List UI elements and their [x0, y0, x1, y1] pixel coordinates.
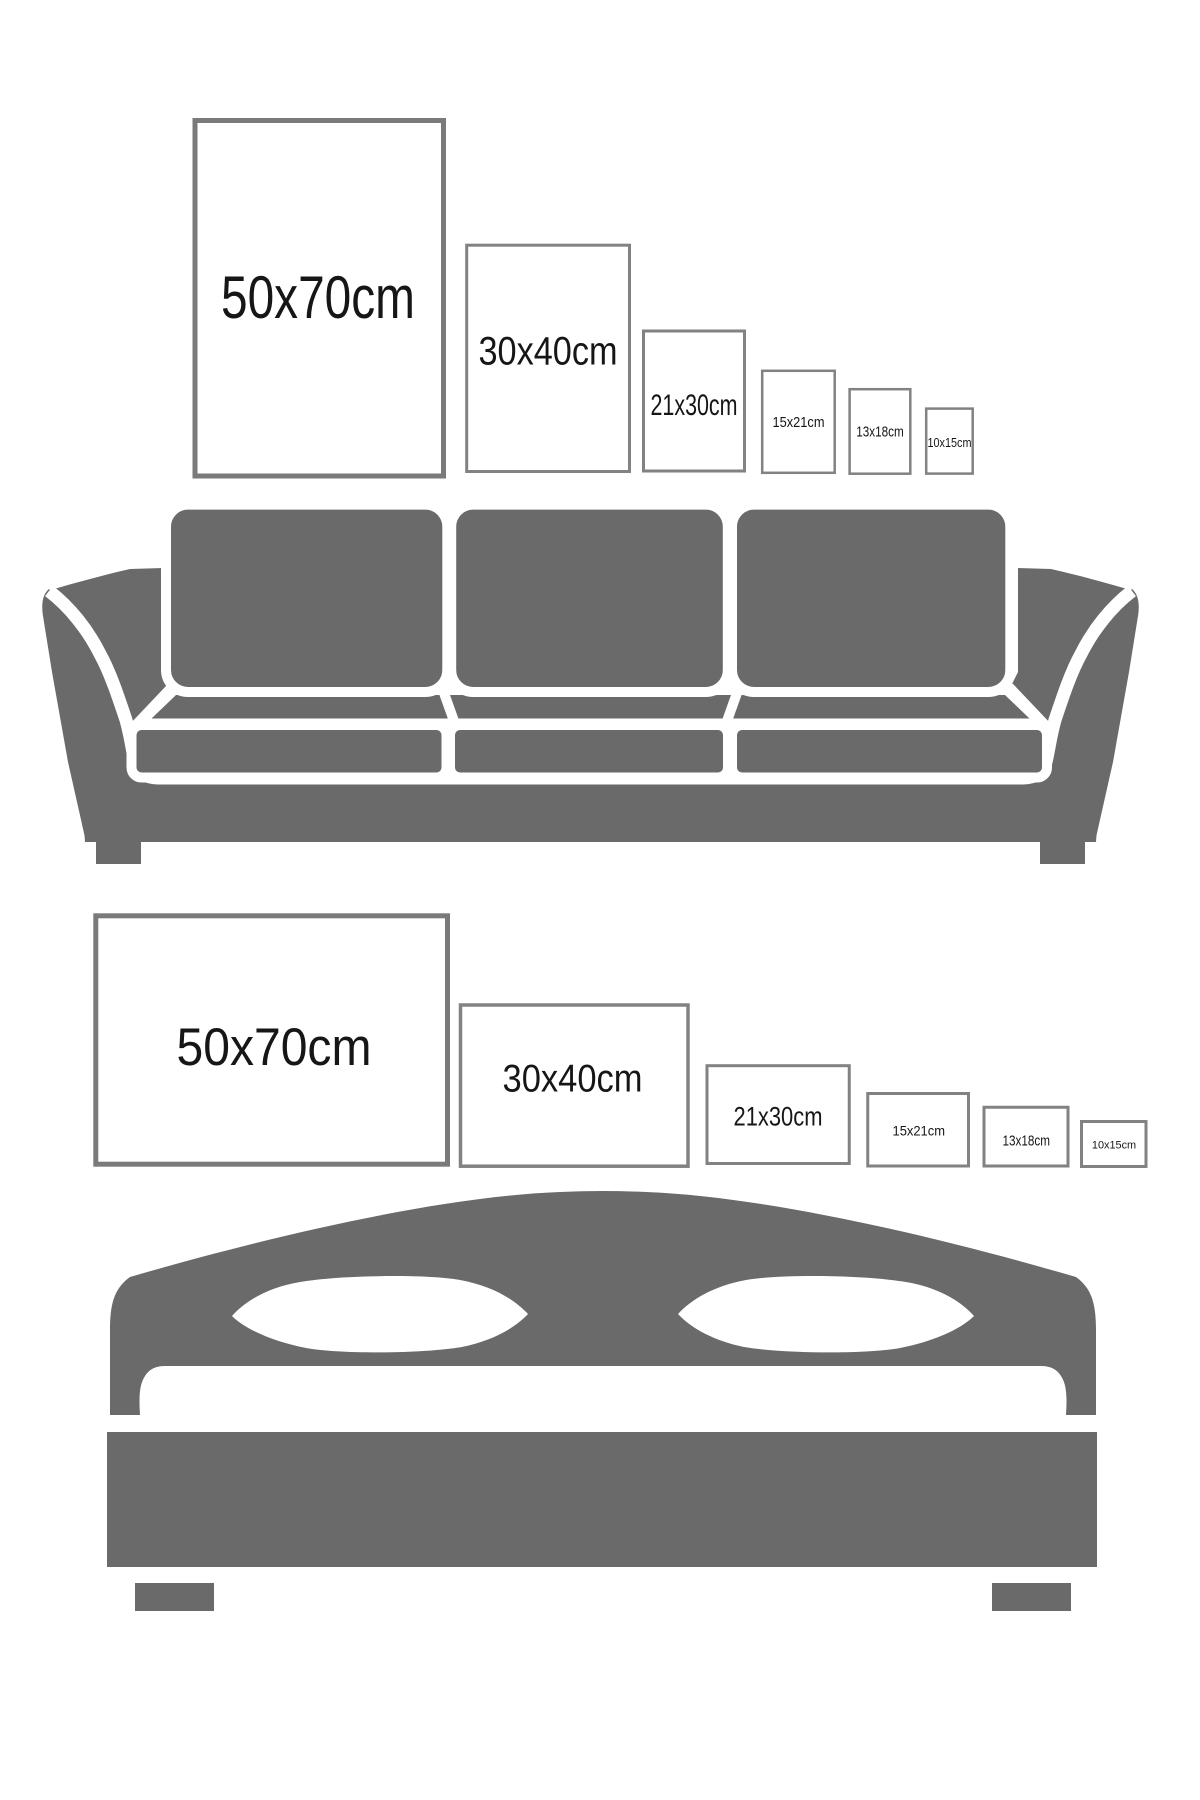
- svg-text:13x18cm: 13x18cm: [856, 424, 904, 441]
- svg-text:21x30cm: 21x30cm: [651, 389, 738, 422]
- svg-text:13x18cm: 13x18cm: [1003, 1133, 1051, 1150]
- svg-text:30x40cm: 30x40cm: [503, 1058, 643, 1101]
- svg-text:30x40cm: 30x40cm: [479, 330, 618, 374]
- svg-text:10x15cm: 10x15cm: [1092, 1140, 1136, 1152]
- svg-text:21x30cm: 21x30cm: [734, 1102, 823, 1132]
- svg-text:15x21cm: 15x21cm: [893, 1123, 946, 1139]
- svg-text:50x70cm: 50x70cm: [177, 1018, 372, 1077]
- svg-text:50x70cm: 50x70cm: [221, 264, 415, 331]
- svg-text:15x21cm: 15x21cm: [773, 414, 825, 431]
- svg-text:10x15cm: 10x15cm: [928, 436, 972, 450]
